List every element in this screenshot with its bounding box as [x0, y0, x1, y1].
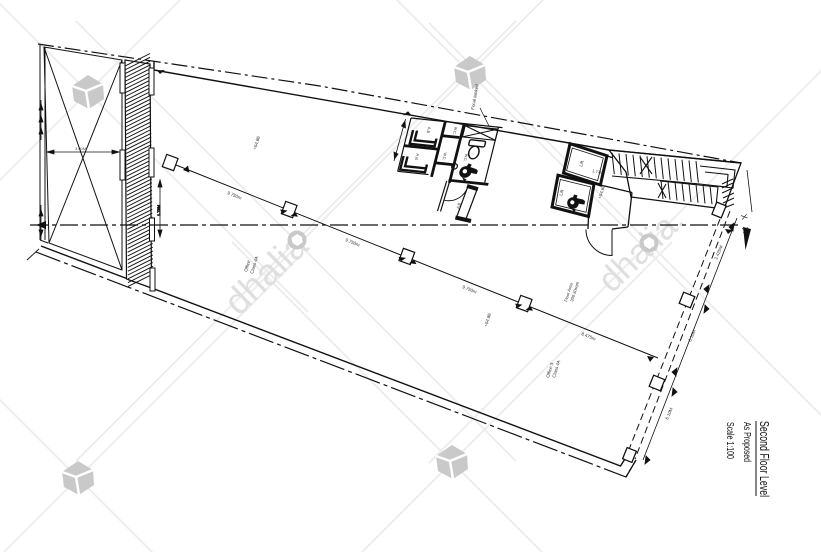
svg-text:3.00M: 3.00M: [75, 146, 86, 151]
svg-text:Second Floor Level: Second Floor Level: [756, 421, 770, 497]
svg-text:1.73M: 1.73M: [156, 205, 161, 216]
svg-text:As Proposed: As Proposed: [742, 422, 754, 462]
svg-text:Scale 1:100: Scale 1:100: [725, 422, 737, 459]
